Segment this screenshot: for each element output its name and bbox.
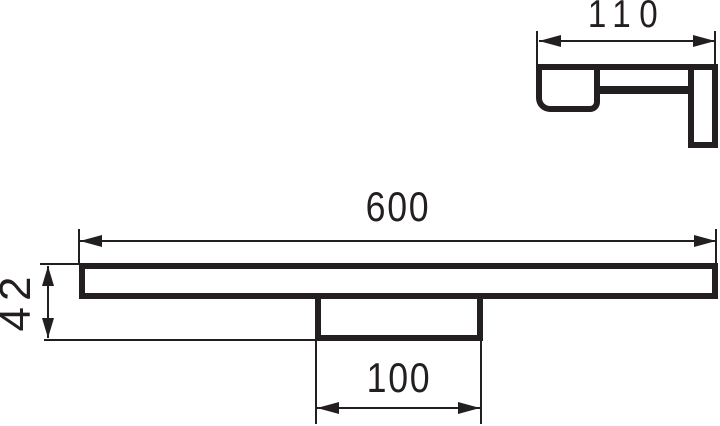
arrowhead-left-icon — [80, 235, 102, 247]
mounting-arm-side-view — [594, 86, 691, 94]
arrowhead-down-icon — [42, 318, 54, 338]
arrowhead-right-icon — [694, 235, 716, 247]
dimension-line — [80, 240, 716, 242]
extension-line-top — [40, 263, 80, 265]
arrowhead-right-icon — [458, 402, 480, 414]
technical-drawing-canvas: 600 42 100 — [0, 0, 720, 426]
dimension-line — [539, 40, 715, 42]
lamp-bar-front-view — [79, 263, 718, 299]
arrowhead-left-icon — [317, 402, 339, 414]
dimension-height-label: 42 — [0, 241, 38, 361]
extension-line-left — [536, 31, 538, 64]
dimension-bracket-width-label: 100 — [314, 356, 484, 400]
arrowhead-up-icon — [42, 266, 54, 286]
lamp-head-side-view — [536, 70, 600, 112]
dimension-depth-label: 110 — [542, 0, 712, 37]
extension-line-bottom — [44, 339, 317, 341]
dimension-length-label: 600 — [313, 185, 483, 229]
dimension-line — [317, 407, 480, 409]
wall-plate-side-view — [688, 70, 718, 148]
wall-bracket-front-view — [315, 299, 483, 341]
